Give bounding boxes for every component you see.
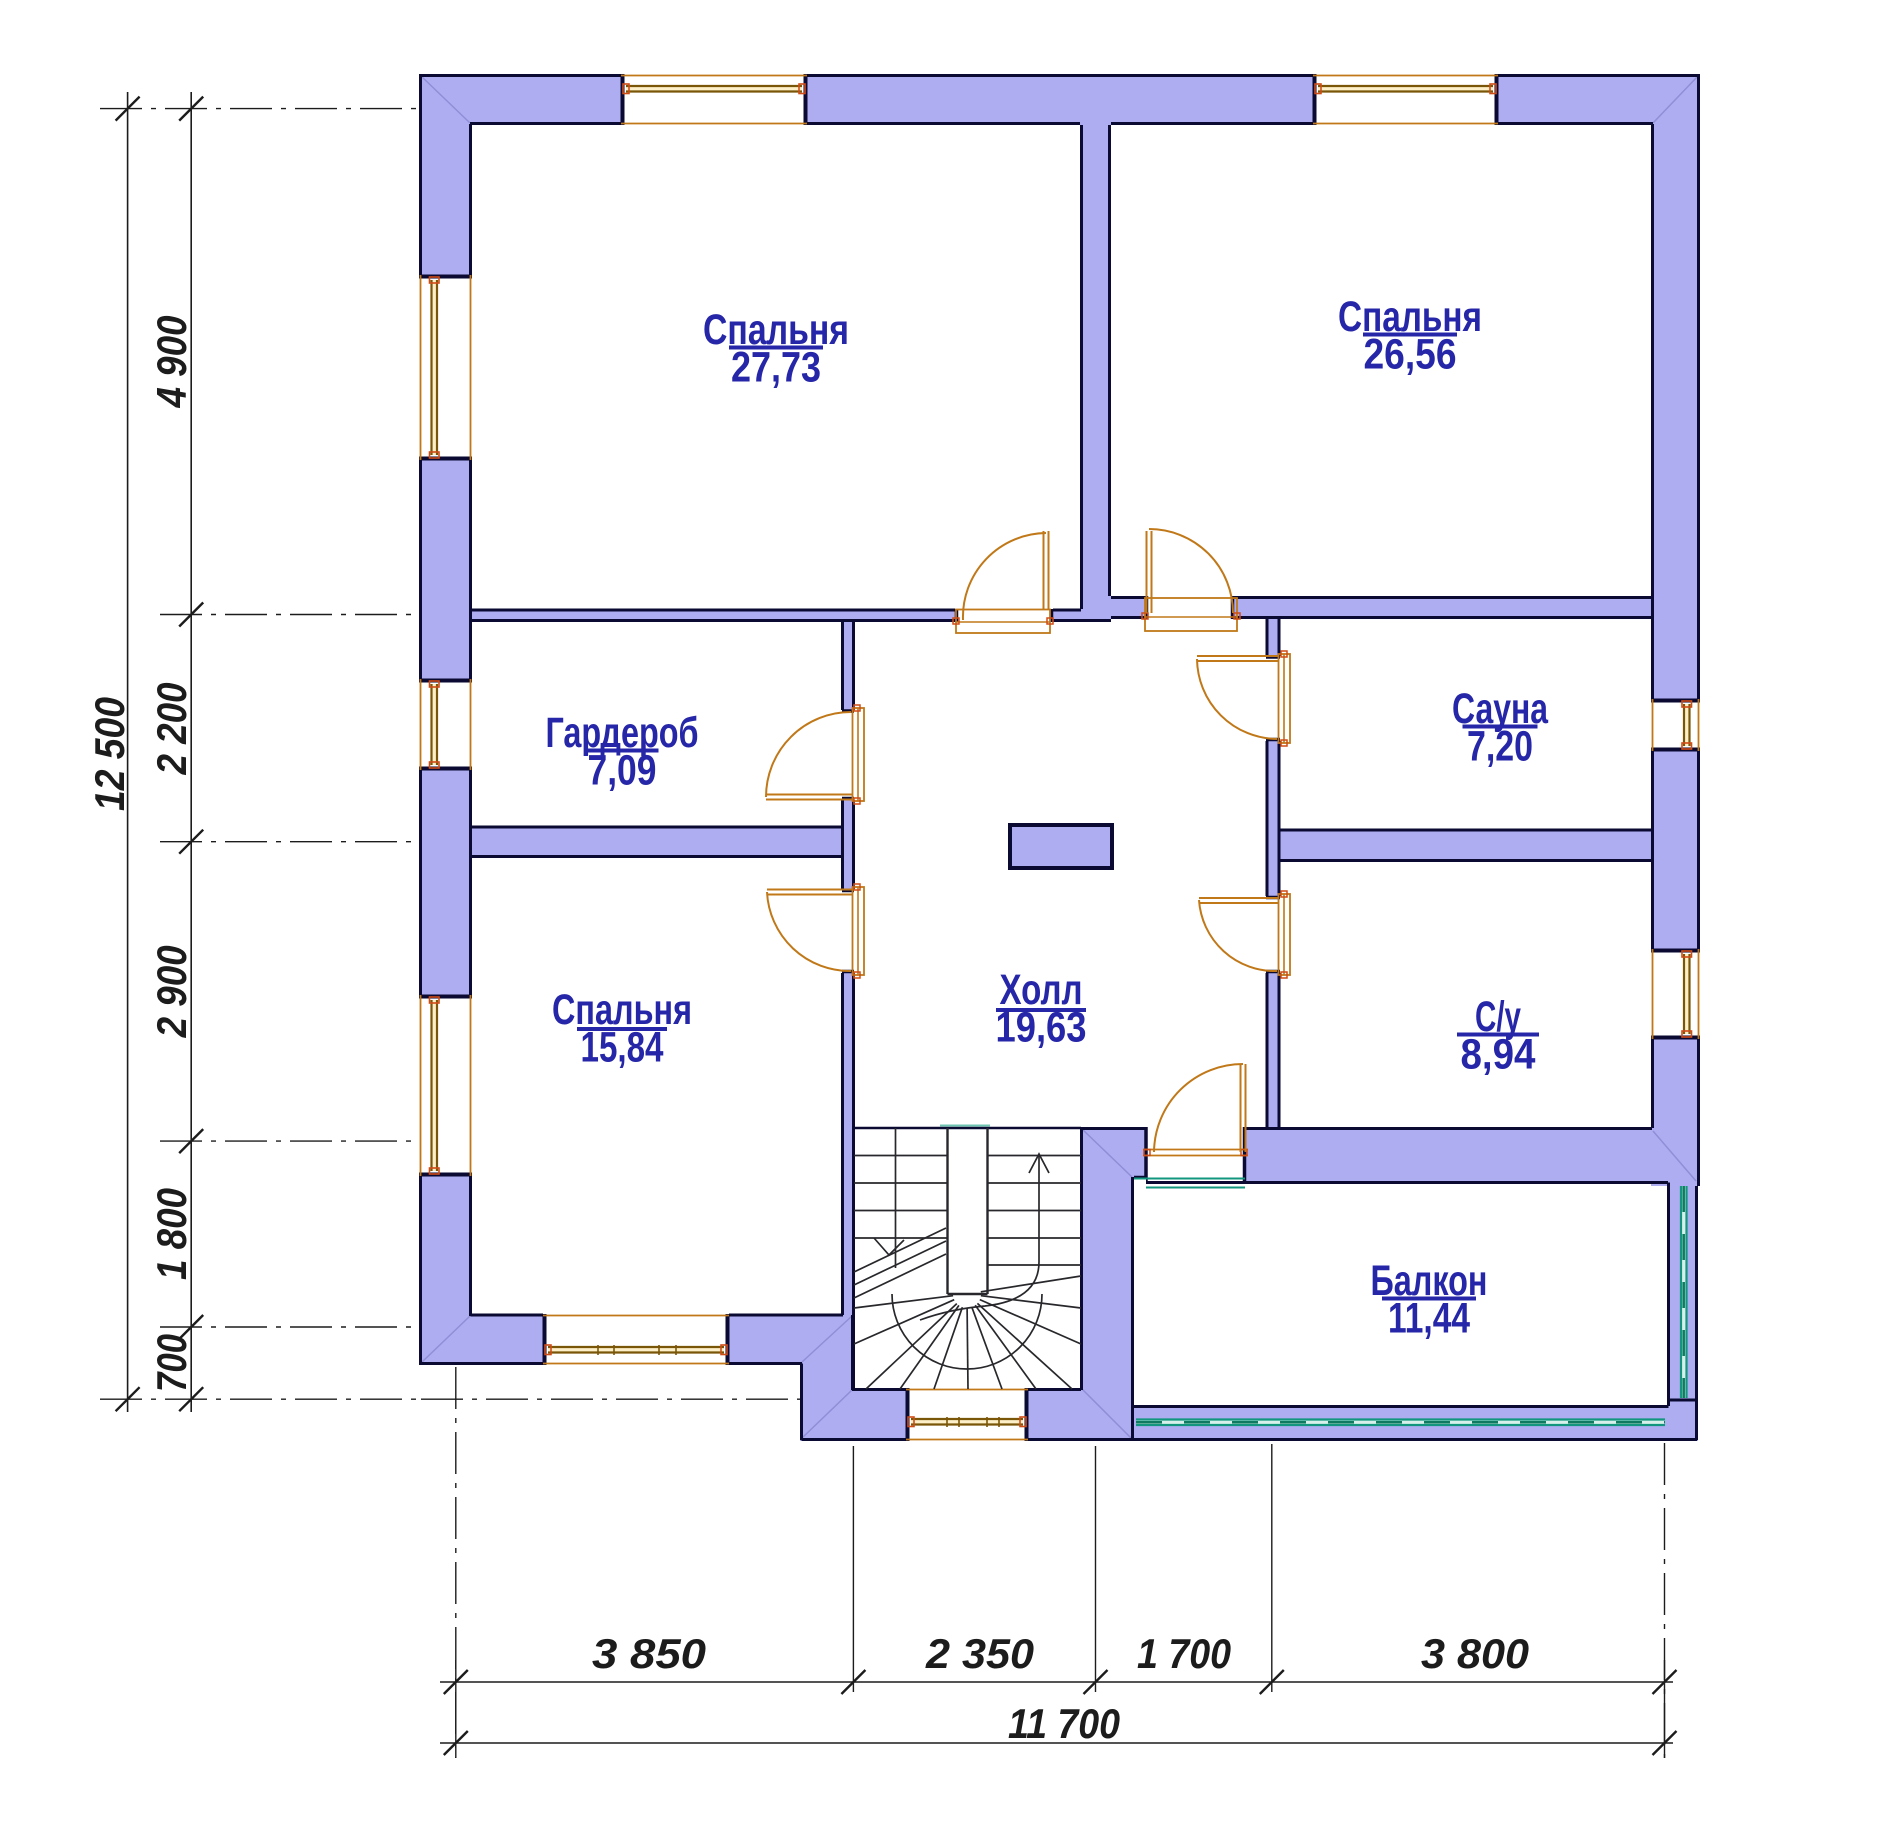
svg-text:700: 700: [148, 1334, 195, 1392]
svg-text:2 200: 2 200: [148, 683, 195, 776]
svg-text:19,63: 19,63: [996, 1004, 1087, 1052]
svg-text:4 900: 4 900: [148, 316, 195, 409]
svg-text:2 350: 2 350: [925, 1630, 1034, 1677]
svg-text:7,09: 7,09: [588, 747, 657, 795]
svg-text:26,56: 26,56: [1364, 331, 1457, 379]
svg-text:1 700: 1 700: [1137, 1630, 1231, 1677]
svg-text:12 500: 12 500: [86, 697, 133, 811]
svg-text:3 850: 3 850: [592, 1630, 706, 1677]
svg-text:1 800: 1 800: [148, 1188, 195, 1280]
svg-text:15,84: 15,84: [581, 1024, 664, 1072]
svg-text:11,44: 11,44: [1388, 1295, 1470, 1343]
svg-text:8,94: 8,94: [1461, 1031, 1536, 1079]
svg-text:7,20: 7,20: [1467, 723, 1533, 771]
svg-text:27,73: 27,73: [731, 344, 821, 392]
svg-text:2 900: 2 900: [148, 945, 195, 1038]
svg-text:11 700: 11 700: [1008, 1700, 1120, 1747]
svg-text:3 800: 3 800: [1421, 1630, 1529, 1677]
